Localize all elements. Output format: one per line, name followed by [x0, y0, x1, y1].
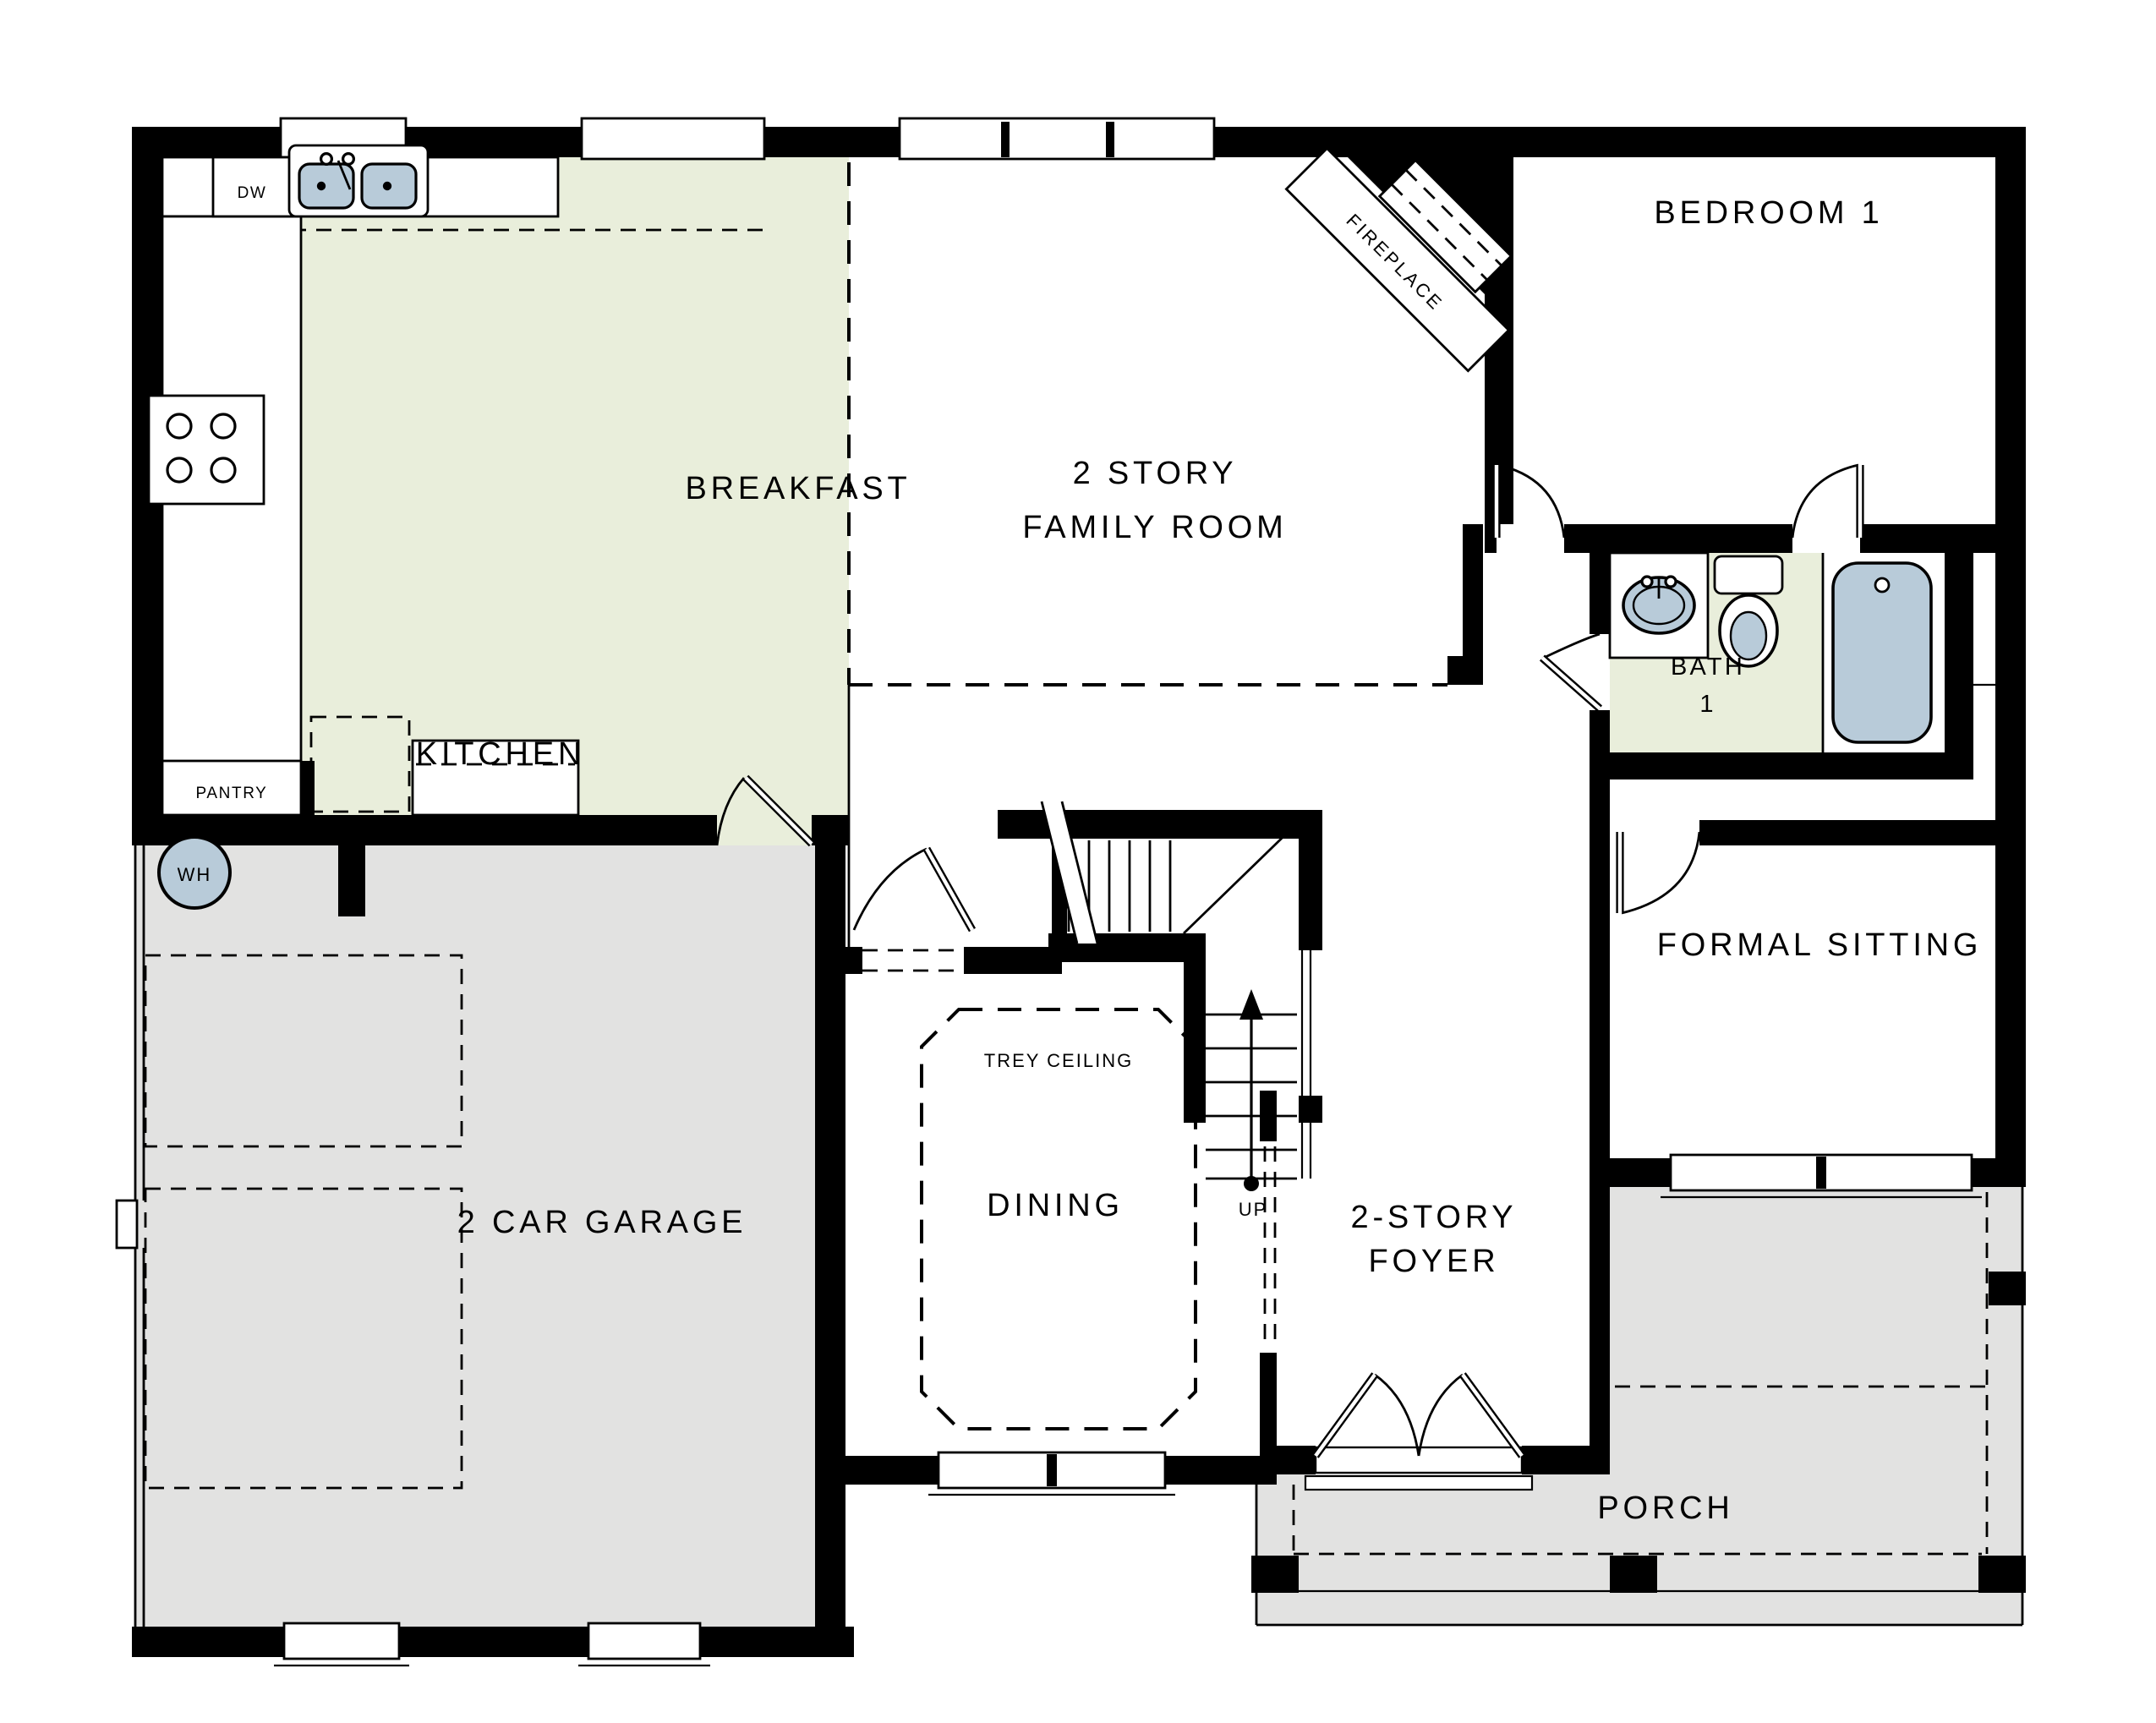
label-dining: DINING [987, 1188, 1124, 1223]
label-bath1-line1: BATH [1671, 654, 1745, 681]
dishwasher-label: DW [238, 184, 267, 202]
window-mullion [1816, 1157, 1826, 1189]
label-bath1-line2: 1 [1699, 691, 1715, 718]
porch-column [1989, 1272, 2026, 1305]
pantry-label: PANTRY [196, 785, 268, 802]
label-bedroom1: BEDROOM 1 [1654, 195, 1883, 231]
water-heater-label: WH [178, 864, 212, 885]
label-foyer-line2: FOYER [1369, 1244, 1500, 1279]
label-porch: PORCH [1597, 1491, 1733, 1526]
kitchen-sink-icon [289, 145, 428, 216]
closet-door [854, 849, 972, 930]
floor-plan-page: WH FIREPLACE BREAKFAST KITCHEN 2 STORY F… [0, 0, 2156, 1723]
bath1-door [1542, 634, 1600, 708]
label-foyer-line1: 2-STORY [1351, 1200, 1518, 1235]
porch-column [1251, 1556, 1299, 1593]
floor-plan-drawing: WH FIREPLACE BREAKFAST KITCHEN 2 STORY F… [0, 0, 2156, 1723]
label-family-line1: 2 STORY [1073, 456, 1238, 491]
garage-side-window [117, 1201, 137, 1248]
bedroom1-closet-door [1792, 465, 1860, 538]
label-formal-sitting: FORMAL SITTING [1657, 927, 1983, 963]
up-arrow-icon [1239, 989, 1263, 1191]
trey-ceiling-label: TREY CEILING [984, 1050, 1133, 1071]
porch-column [1978, 1556, 2026, 1593]
breakfast-window [582, 118, 764, 159]
porch-column [1610, 1556, 1657, 1593]
family-room-window [900, 118, 1214, 159]
pantry-wall [301, 761, 315, 815]
window-mullion [1106, 122, 1114, 157]
label-family-line2: FAMILY ROOM [1022, 510, 1287, 545]
stair-landing-line [1184, 823, 1297, 933]
label-breakfast: BREAKFAST [685, 471, 911, 506]
range-icon [149, 396, 264, 504]
bathtub-icon [1833, 563, 1931, 742]
entry-double-door [1305, 1375, 1532, 1490]
bathroom-sink-icon [1610, 553, 1708, 658]
water-heater-icon: WH [159, 837, 230, 908]
garage-window [588, 1623, 700, 1659]
window-mullion [1001, 122, 1010, 157]
window-mullion [1047, 1454, 1057, 1486]
stairs-up-label: UP [1239, 1199, 1268, 1220]
label-garage: 2 CAR GARAGE [457, 1205, 747, 1240]
formal-sitting-door [1620, 832, 1699, 913]
toilet-icon [1715, 556, 1782, 666]
label-kitchen: KITCHEN [416, 736, 585, 772]
garage-window [284, 1623, 399, 1659]
